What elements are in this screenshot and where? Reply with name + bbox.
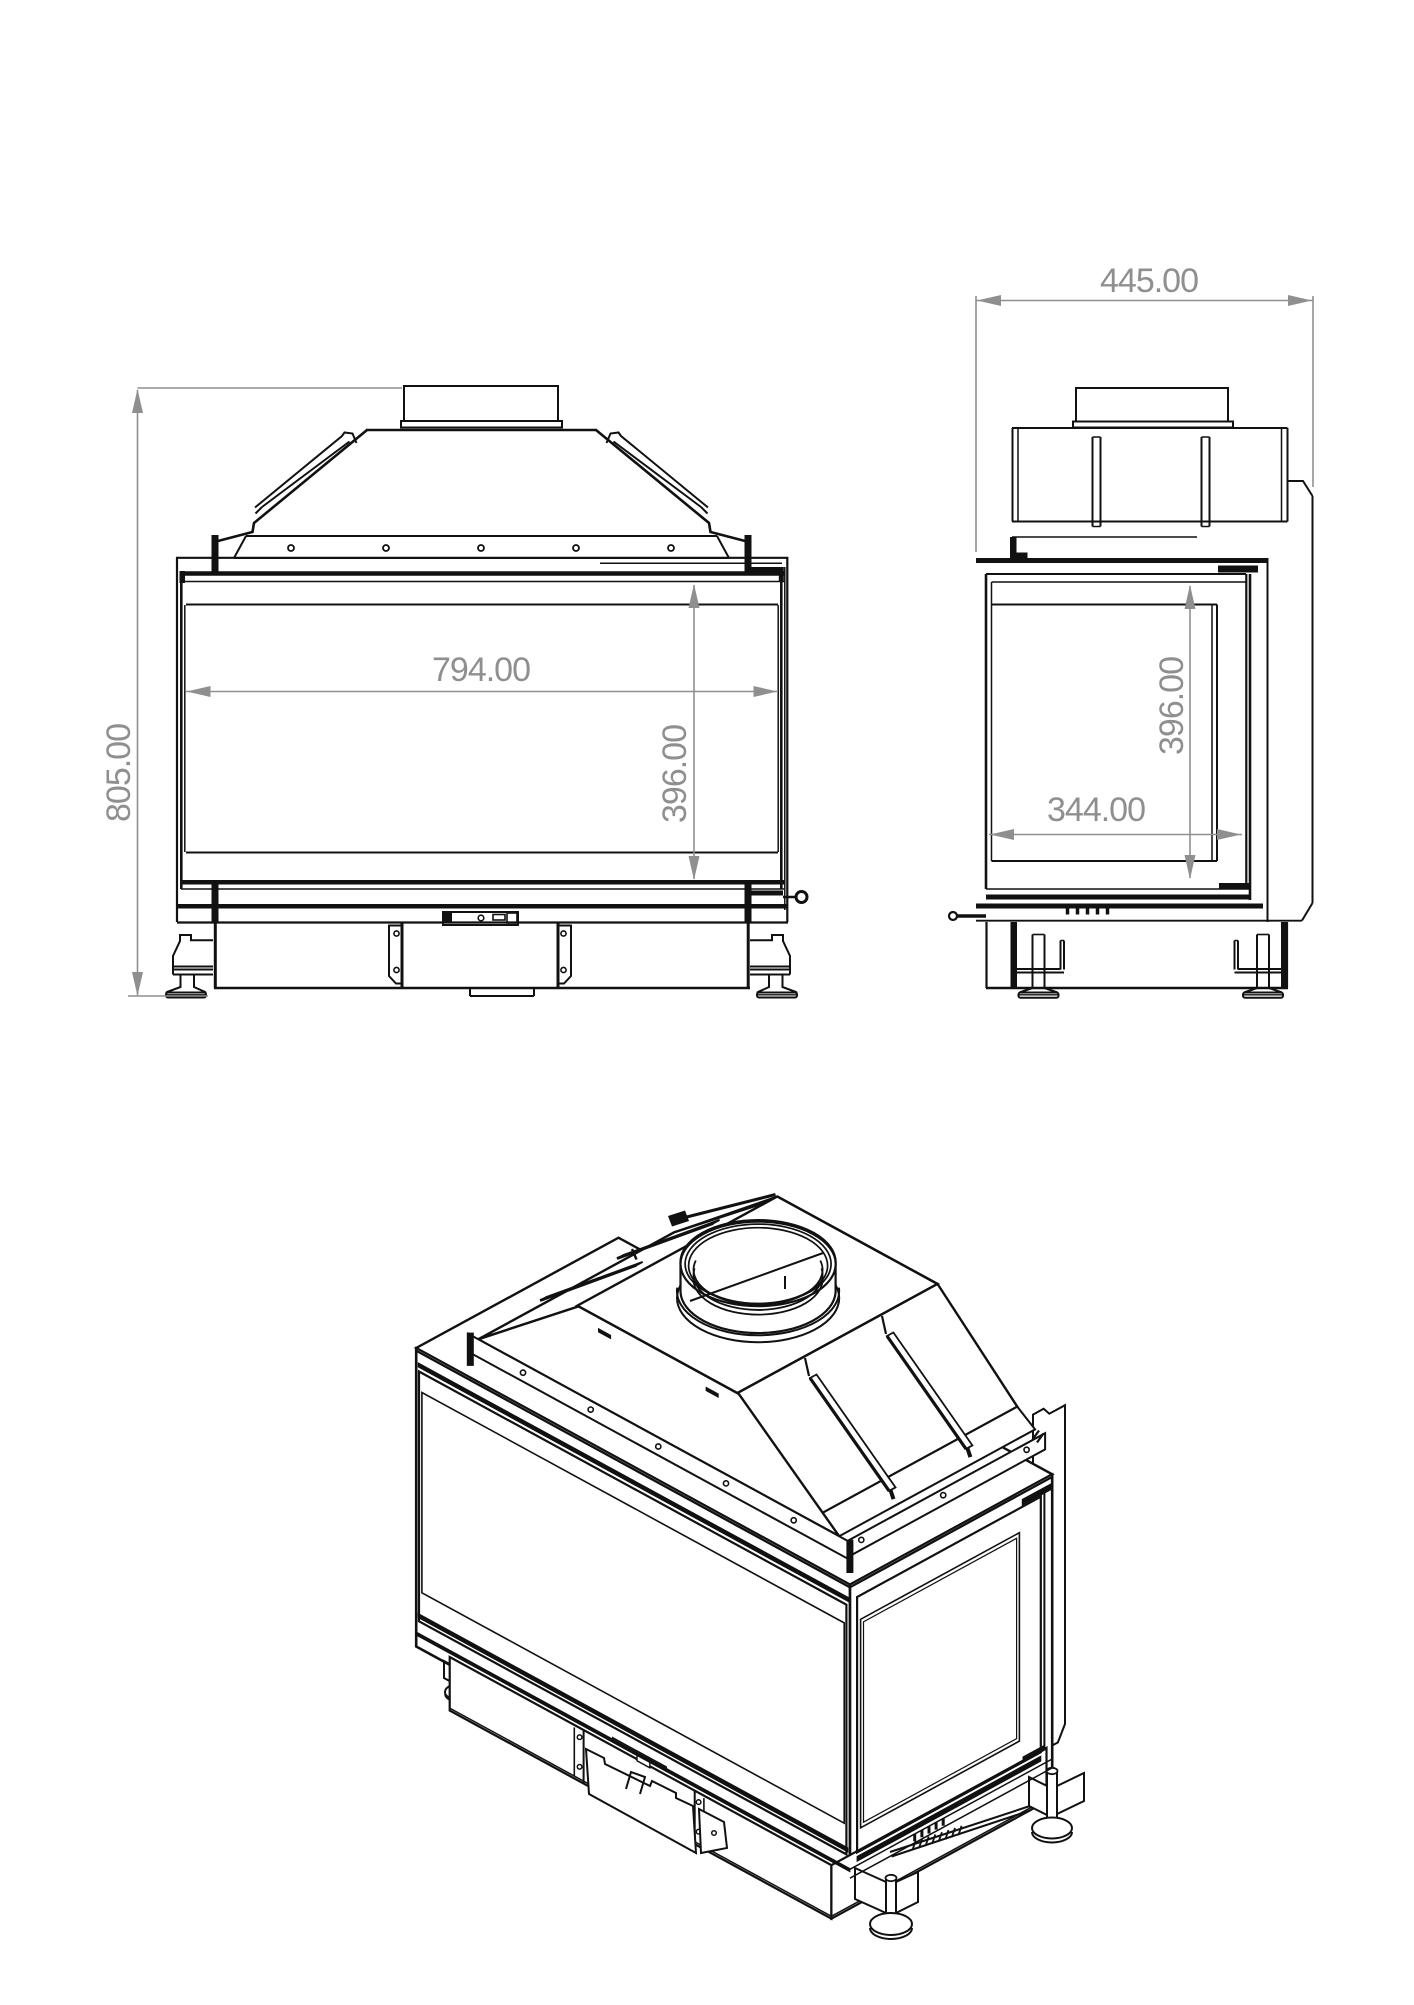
svg-text:445.00: 445.00 bbox=[1100, 262, 1198, 300]
svg-text:794.00: 794.00 bbox=[432, 651, 530, 689]
svg-text:396.00: 396.00 bbox=[656, 725, 694, 823]
svg-text:805.00: 805.00 bbox=[100, 724, 138, 822]
svg-text:396.00: 396.00 bbox=[1153, 657, 1191, 755]
svg-text:344.00: 344.00 bbox=[1047, 791, 1145, 829]
